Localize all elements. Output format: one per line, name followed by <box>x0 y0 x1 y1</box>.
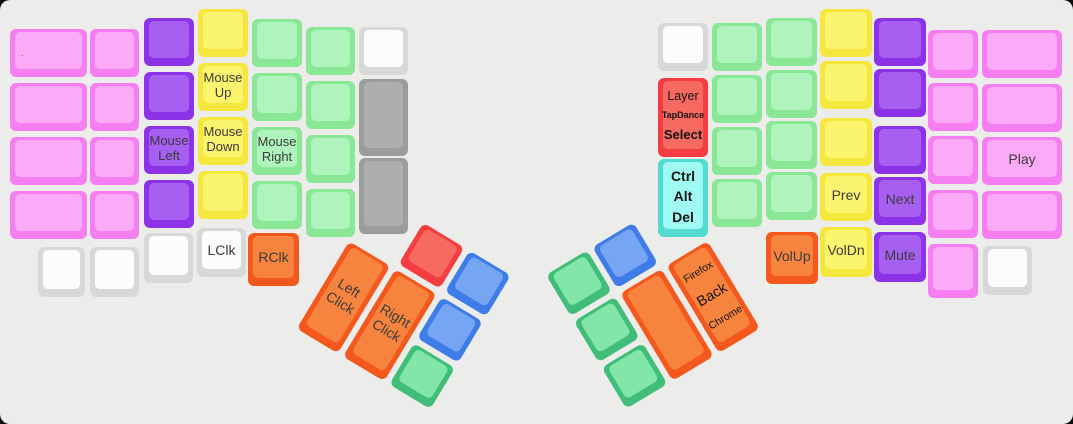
key-r-c6-2-cap <box>717 78 757 115</box>
key-r-outer-2-cap <box>987 87 1057 124</box>
key-r-c5-4[interactable] <box>766 172 817 220</box>
key-r-outer-1-cap <box>987 33 1057 70</box>
main-key-layer: .Mouse LeftMouse UpMouse DownMouse Right… <box>0 0 1073 424</box>
key-r-c4-1[interactable] <box>820 9 872 57</box>
key-l-c6-3[interactable] <box>306 135 355 183</box>
key-l-outer-3[interactable] <box>10 137 87 185</box>
key-l-c2-4[interactable] <box>90 191 139 239</box>
key-l-outer-2-cap <box>15 86 82 123</box>
key-l-c3-1[interactable] <box>144 18 194 66</box>
key-layer-tapdance-select[interactable]: LayerTapDanceSelect <box>658 78 708 157</box>
key-rclk-cap <box>253 236 294 278</box>
key-l-c3-1-cap <box>149 21 189 58</box>
key-ctrl-alt-del[interactable]: CtrlAltDel <box>658 159 708 237</box>
key-mute[interactable]: Mute <box>874 232 926 282</box>
key-l-c3-4[interactable] <box>144 180 194 228</box>
key-l-c2-3[interactable] <box>90 137 139 185</box>
key-l-c6-2-cap <box>311 84 350 121</box>
key-l-c2-4-cap <box>95 194 134 231</box>
key-r-c5-2[interactable] <box>766 70 817 118</box>
key-r-c7-1-cap <box>663 26 703 63</box>
key-r-c2-3[interactable] <box>928 136 978 184</box>
key-mouse-down-cap <box>203 120 243 157</box>
key-r-c3-3-cap <box>879 129 921 166</box>
key-l-bottom-1[interactable] <box>38 247 85 297</box>
key-r-bottom-white[interactable] <box>983 246 1032 295</box>
keymap-board: .Mouse LeftMouse UpMouse DownMouse Right… <box>0 0 1073 424</box>
key-mouse-right[interactable]: Mouse Right <box>252 127 302 175</box>
key-r-c5-3-cap <box>771 124 812 161</box>
key-mouse-up-cap <box>203 66 243 103</box>
key-r-c4-3-cap <box>825 121 867 158</box>
key-mouse-right-cap <box>257 130 297 167</box>
key-l-bottom-3[interactable] <box>144 233 193 283</box>
key-r-c7-1[interactable] <box>658 23 708 71</box>
key-lclk-cap <box>202 231 241 269</box>
key-l-c6-4[interactable] <box>306 189 355 237</box>
key-next-cap <box>879 180 921 217</box>
key-l-c6-4-cap <box>311 192 350 229</box>
key-r-c4-3[interactable] <box>820 118 872 166</box>
key-r-c5-3[interactable] <box>766 121 817 169</box>
key-r-c2-2[interactable] <box>928 83 978 131</box>
key-l-outer-4[interactable] <box>10 191 87 239</box>
key-rclk[interactable]: RClk <box>248 233 299 286</box>
key-r-c3-2-cap <box>879 72 921 109</box>
key-l-bottom-2[interactable] <box>90 247 139 297</box>
key-l-c7-1[interactable] <box>359 27 408 75</box>
key-r-c2-4[interactable] <box>928 190 978 238</box>
key-volup-cap <box>771 235 813 276</box>
key-r-c2-4-cap <box>933 193 973 230</box>
key-mouse-left[interactable]: Mouse Left <box>144 126 194 174</box>
key-r-c3-1[interactable] <box>874 18 926 66</box>
key-r-c6-4-cap <box>717 182 757 219</box>
key-lclk[interactable]: LClk <box>197 228 246 277</box>
key-mute-cap <box>879 235 921 274</box>
key-play-cap <box>987 140 1057 177</box>
key-r-c3-3[interactable] <box>874 126 926 174</box>
key-r-c6-2[interactable] <box>712 75 762 123</box>
key-l-c2-2[interactable] <box>90 83 139 131</box>
key-r-bottom-white-cap <box>988 249 1027 287</box>
key-l-c5-2[interactable] <box>252 73 302 121</box>
key-l-c6-2[interactable] <box>306 81 355 129</box>
key-l-c7-2[interactable] <box>359 79 408 156</box>
key-l-c3-2[interactable] <box>144 72 194 120</box>
key-l-outer-1-cap <box>15 32 82 69</box>
key-l-c6-3-cap <box>311 138 350 175</box>
key-l-outer-2[interactable] <box>10 83 87 131</box>
key-r-outer-4-cap <box>987 194 1057 231</box>
key-r-c3-1-cap <box>879 21 921 58</box>
key-voldn-cap <box>825 230 867 269</box>
key-r-outer-1[interactable] <box>982 30 1062 78</box>
key-l-outer-3-cap <box>15 140 82 177</box>
key-r-c2-1[interactable] <box>928 30 978 78</box>
key-l-c7-3[interactable] <box>359 158 408 234</box>
key-r-c6-4[interactable] <box>712 179 762 227</box>
key-l-c3-2-cap <box>149 75 189 112</box>
key-r-c6-1-cap <box>717 26 757 63</box>
key-prev[interactable]: Prev <box>820 173 872 221</box>
key-r-c2-1-cap <box>933 33 973 70</box>
key-r-c5-4-cap <box>771 175 812 212</box>
key-mouse-up[interactable]: Mouse Up <box>198 63 248 111</box>
key-r-c3-2[interactable] <box>874 69 926 117</box>
key-r-c2-3-cap <box>933 139 973 176</box>
key-l-bottom-3-cap <box>149 236 188 275</box>
key-l-c2-1-cap <box>95 32 134 69</box>
key-l-c4-4[interactable] <box>198 171 248 219</box>
key-l-c5-4-cap <box>257 184 297 221</box>
key-r-c4-2-cap <box>825 64 867 101</box>
key-r-c6-3[interactable] <box>712 127 762 175</box>
key-l-c5-1[interactable] <box>252 19 302 67</box>
key-l-c3-4-cap <box>149 183 189 220</box>
key-r-outer-2[interactable] <box>982 84 1062 132</box>
key-layer-tapdance-select-cap <box>663 81 703 149</box>
key-next[interactable]: Next <box>874 177 926 225</box>
key-l-c5-1-cap <box>257 22 297 59</box>
key-ctrl-alt-del-cap <box>663 162 703 229</box>
key-r-c4-1-cap <box>825 12 867 49</box>
key-l-c5-4[interactable] <box>252 181 302 229</box>
key-l-bottom-1-cap <box>43 250 80 289</box>
key-l-c7-1-cap <box>364 30 403 67</box>
key-mouse-down[interactable]: Mouse Down <box>198 117 248 165</box>
key-r-outer-4[interactable] <box>982 191 1062 239</box>
key-l-c4-1[interactable] <box>198 9 248 57</box>
key-l-c2-2-cap <box>95 86 134 123</box>
key-play[interactable]: Play <box>982 137 1062 185</box>
key-l-c2-3-cap <box>95 140 134 177</box>
key-r-bottom-pink[interactable] <box>928 244 978 298</box>
key-l-c2-1[interactable] <box>90 29 139 77</box>
key-l-c5-2-cap <box>257 76 297 113</box>
key-l-c6-1-cap <box>311 30 350 67</box>
key-prev-cap <box>825 176 867 213</box>
key-volup[interactable]: VolUp <box>766 232 818 284</box>
key-l-outer-1[interactable]: . <box>10 29 87 77</box>
key-r-c2-2-cap <box>933 86 973 123</box>
key-r-c5-1[interactable] <box>766 18 817 66</box>
key-l-c6-1[interactable] <box>306 27 355 75</box>
key-r-c6-3-cap <box>717 130 757 167</box>
key-l-c4-4-cap <box>203 174 243 211</box>
key-l-outer-4-cap <box>15 194 82 231</box>
key-mouse-left-cap <box>149 129 189 166</box>
key-r-bottom-pink-cap <box>933 247 973 290</box>
key-voldn[interactable]: VolDn <box>820 227 872 277</box>
key-r-c6-1[interactable] <box>712 23 762 71</box>
key-r-c4-2[interactable] <box>820 61 872 109</box>
key-l-c7-3-cap <box>364 161 403 226</box>
key-l-c7-2-cap <box>364 82 403 148</box>
key-r-c5-2-cap <box>771 73 812 110</box>
key-l-c4-1-cap <box>203 12 243 49</box>
key-r-c5-1-cap <box>771 21 812 58</box>
key-l-bottom-2-cap <box>95 250 134 289</box>
